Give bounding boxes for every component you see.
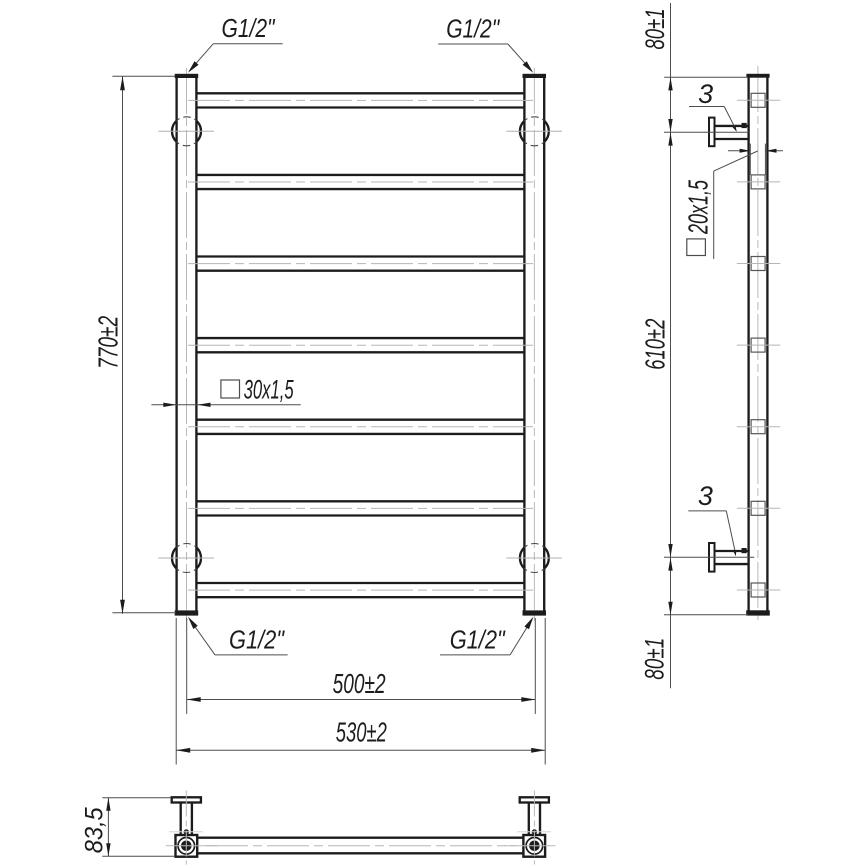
svg-text:500±2: 500±2 <box>333 668 386 699</box>
svg-text:G1/2": G1/2" <box>229 627 285 655</box>
svg-text:G1/2": G1/2" <box>222 15 276 43</box>
svg-text:3: 3 <box>698 481 713 511</box>
svg-text:30x1,5: 30x1,5 <box>244 375 295 405</box>
svg-text:3: 3 <box>698 79 713 109</box>
svg-text:20x1,5: 20x1,5 <box>683 180 714 235</box>
svg-text:610±2: 610±2 <box>640 319 671 370</box>
svg-text:770±2: 770±2 <box>92 316 123 369</box>
svg-text:G1/2": G1/2" <box>450 627 506 655</box>
svg-text:530±2: 530±2 <box>336 717 387 748</box>
svg-text:G1/2": G1/2" <box>446 16 500 44</box>
svg-text:80±1: 80±1 <box>639 638 669 680</box>
svg-text:80±1: 80±1 <box>640 9 670 50</box>
svg-text:83,5: 83,5 <box>80 807 108 853</box>
